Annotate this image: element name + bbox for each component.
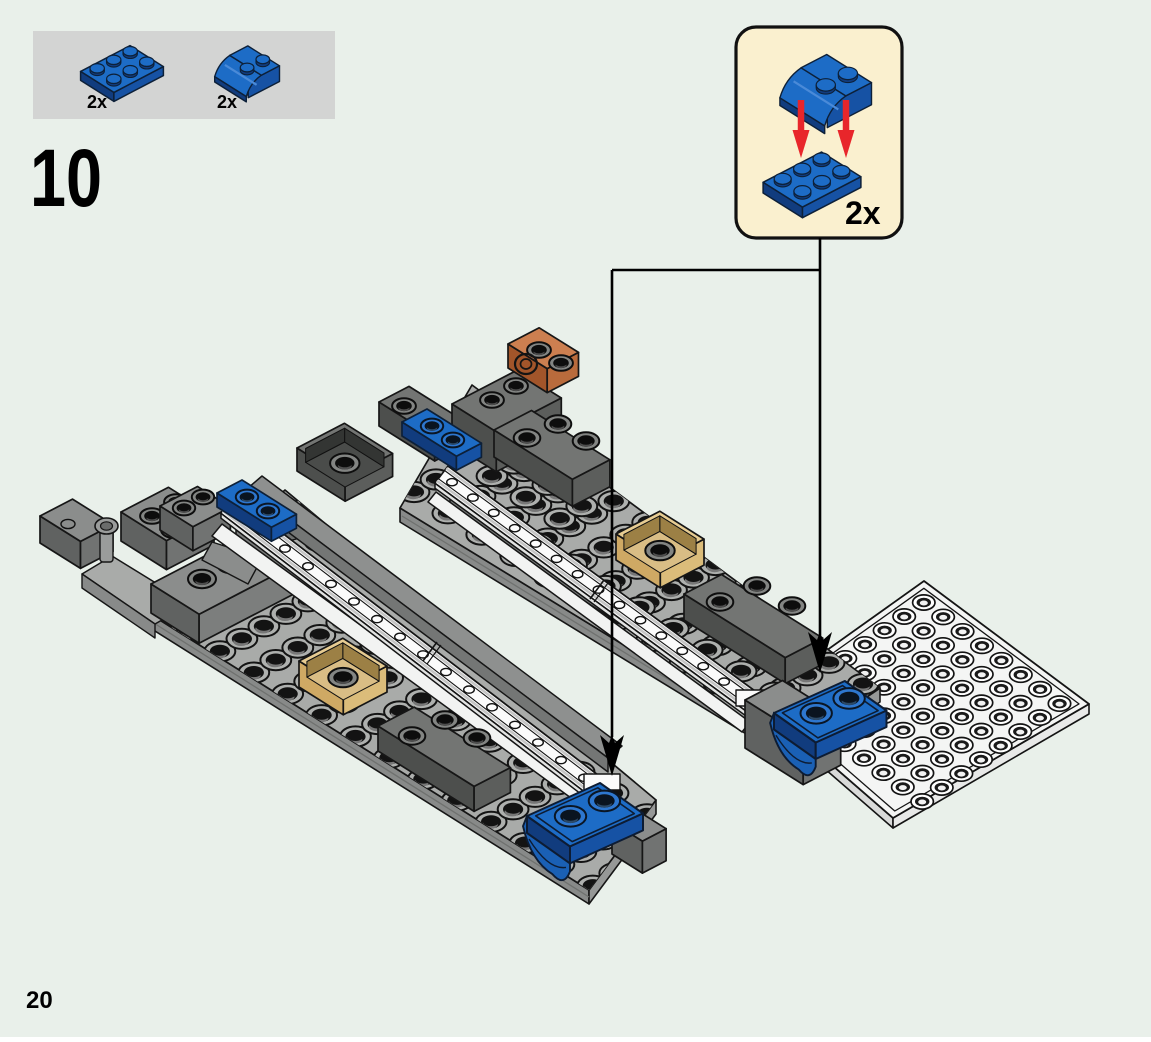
svg-text:10: 10 xyxy=(30,133,102,224)
svg-text:2x: 2x xyxy=(217,92,237,112)
svg-text:2x: 2x xyxy=(845,195,881,231)
svg-text:2x: 2x xyxy=(87,92,107,112)
svg-text:20: 20 xyxy=(26,987,53,1014)
